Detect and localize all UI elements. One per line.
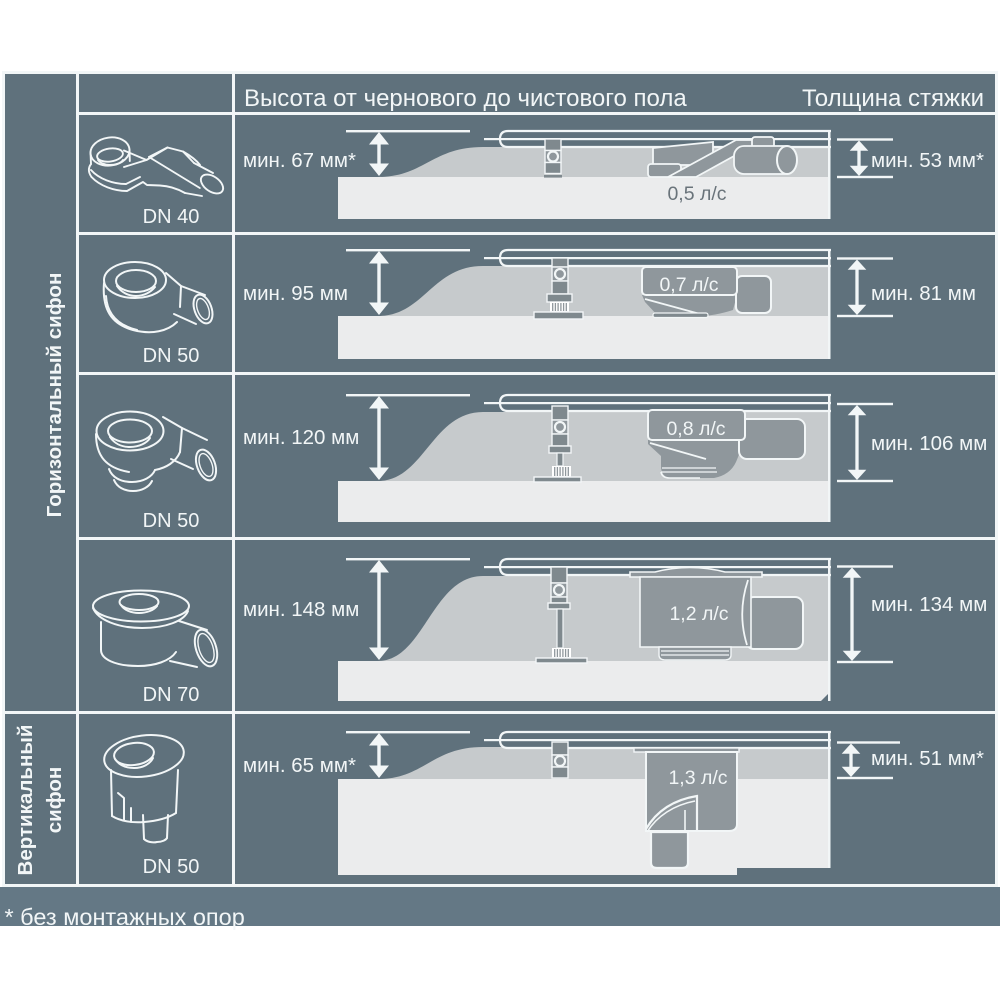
svg-text:мин. 120 мм: мин. 120 мм [243,426,359,449]
svg-text:мин. 81 мм: мин. 81 мм [871,282,976,305]
svg-text:мин. 65 мм*: мин. 65 мм* [243,754,356,777]
svg-text:0,7 л/с: 0,7 л/с [659,274,718,296]
svg-text:DN 50: DN 50 [143,856,200,878]
svg-text:Толщина стяжки: Толщина стяжки [802,85,984,112]
svg-text:DN 50: DN 50 [143,345,200,367]
svg-text:мин. 148 мм: мин. 148 мм [243,598,359,621]
svg-text:мин. 67 мм*: мин. 67 мм* [243,149,356,172]
svg-text:1,3 л/с: 1,3 л/с [668,767,727,789]
svg-text:мин. 95 мм: мин. 95 мм [243,282,348,305]
svg-text:мин. 51 мм*: мин. 51 мм* [871,747,984,770]
svg-text:Высота от чернового до чистово: Высота от чернового до чистового пола [244,85,687,112]
svg-text:Горизонтальный сифон: Горизонтальный сифон [43,273,66,518]
svg-text:DN 70: DN 70 [143,684,200,706]
svg-text:мин. 53 мм*: мин. 53 мм* [871,149,984,172]
svg-text:мин. 134 мм: мин. 134 мм [871,593,987,616]
svg-text:0,8 л/с: 0,8 л/с [666,418,725,440]
svg-text:Вертикальный: Вертикальный [14,725,37,876]
svg-text:сифон: сифон [43,767,66,834]
svg-text:мин. 106 мм: мин. 106 мм [871,432,987,455]
svg-text:0,5 л/с: 0,5 л/с [667,183,726,205]
svg-text:DN 40: DN 40 [143,206,200,228]
svg-text:1,2 л/с: 1,2 л/с [669,603,728,625]
svg-text:DN 50: DN 50 [143,510,200,532]
svg-text:* без монтажных опор: * без монтажных опор [5,904,245,930]
